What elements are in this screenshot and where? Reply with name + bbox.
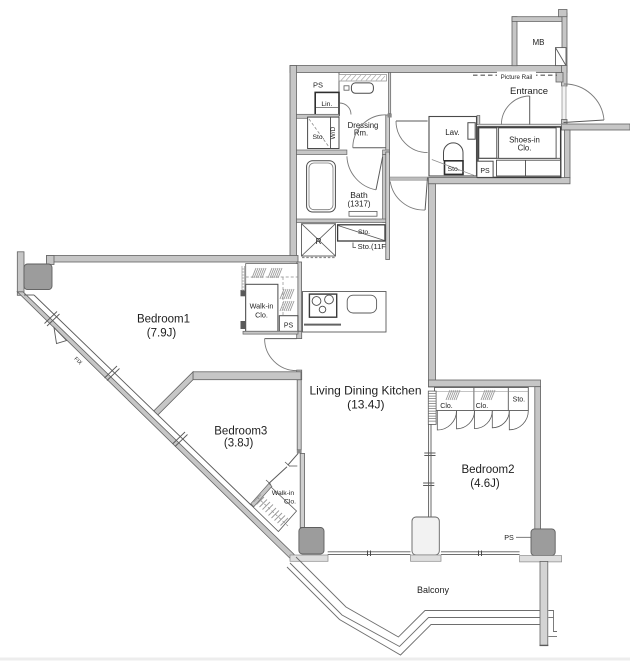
svg-text:Lin.: Lin. <box>321 101 332 108</box>
svg-text:Walk-in: Walk-in <box>250 302 274 311</box>
svg-text:PS: PS <box>480 168 490 175</box>
svg-text:Walk-in: Walk-in <box>272 490 295 497</box>
svg-text:Bedroom1: Bedroom1 <box>137 314 190 326</box>
svg-text:Picture Rail: Picture Rail <box>501 74 533 81</box>
svg-text:PS: PS <box>504 533 514 542</box>
svg-text:Balcony: Balcony <box>417 585 450 595</box>
svg-text:Clo.: Clo. <box>476 403 489 410</box>
svg-text:(3.8J): (3.8J) <box>224 437 254 449</box>
svg-text:Bedroom3: Bedroom3 <box>214 426 267 438</box>
svg-text:Sto.: Sto. <box>312 134 324 141</box>
svg-text:W/D: W/D <box>330 126 337 139</box>
svg-text:(4.6J): (4.6J) <box>470 478 500 490</box>
svg-text:(13.4J): (13.4J) <box>347 398 384 412</box>
svg-text:Clo.: Clo. <box>255 311 268 320</box>
svg-text:(1317): (1317) <box>347 200 370 209</box>
svg-text:(7.9J): (7.9J) <box>147 328 177 340</box>
svg-text:Clo.: Clo. <box>518 144 532 153</box>
svg-text:R: R <box>316 237 322 246</box>
svg-text:Entrance: Entrance <box>510 86 548 97</box>
svg-text:Bath: Bath <box>350 190 368 200</box>
svg-text:Sto.(11F): Sto.(11F) <box>358 242 389 251</box>
svg-text:Bedroom2: Bedroom2 <box>461 464 514 476</box>
svg-text:Living Dining Kitchen: Living Dining Kitchen <box>309 384 421 398</box>
svg-text:MB: MB <box>533 38 545 47</box>
svg-text:Sto.: Sto. <box>513 397 526 404</box>
svg-text:Clo.: Clo. <box>284 499 296 506</box>
svg-text:PS: PS <box>313 80 323 89</box>
svg-text:Sto.: Sto. <box>358 229 370 236</box>
svg-text:Sto.: Sto. <box>448 166 460 173</box>
svg-text:Lav.: Lav. <box>445 128 460 137</box>
svg-text:PS: PS <box>284 323 294 330</box>
svg-text:Clo.: Clo. <box>440 403 453 410</box>
